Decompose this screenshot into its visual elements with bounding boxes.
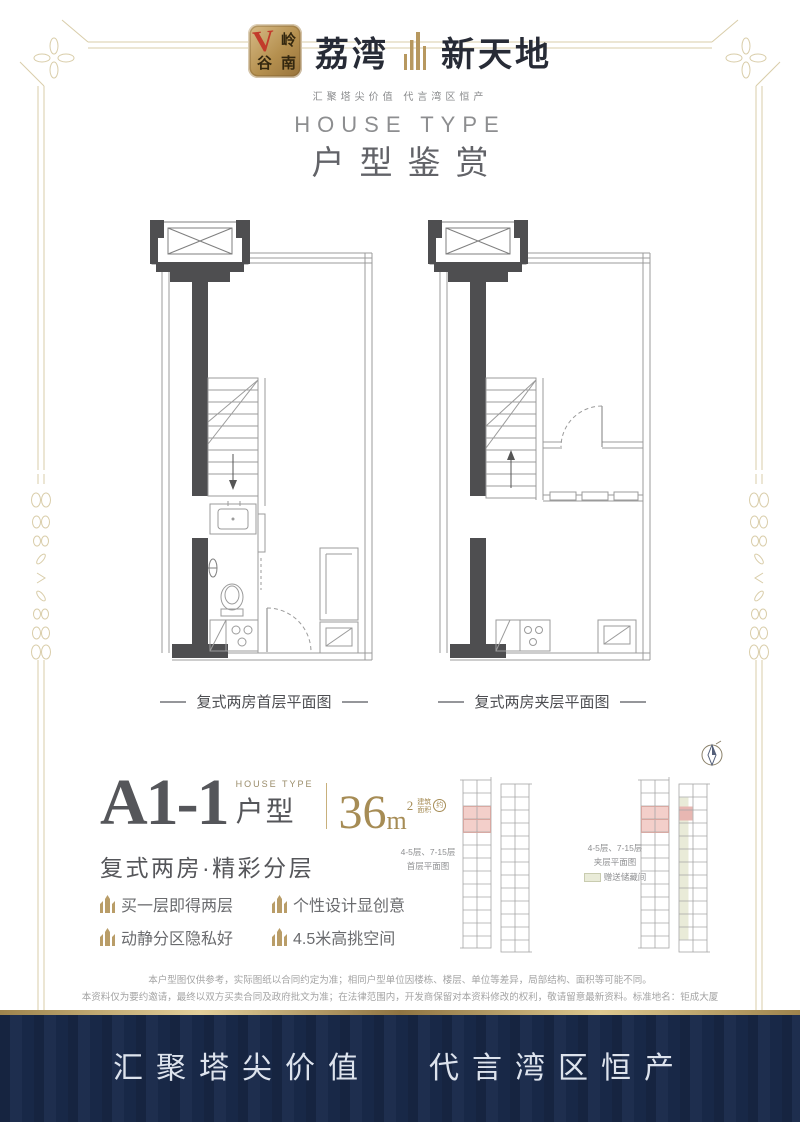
approx-badge: 约 [433,799,446,812]
feature-item: 买一层即得两层 [100,892,258,916]
area-unit: m [387,811,407,832]
unit-house-type-en: HOUSE TYPE [236,779,314,789]
dash-ornament [160,701,186,703]
dash-ornament [620,701,646,703]
disclaimer: 本户型图仅供参考，实际图纸以合同约定为准；相同户型单位因楼栋、楼层、单位等差异，… [0,973,800,1006]
mezzanine-floor-plan [424,216,660,672]
area-note: 面积 [417,807,431,816]
disclaimer-line: 本资料仅为要约邀请，最终以双方买卖合同及政府批文为准；在法律范围内，开发商保留对… [0,990,800,1007]
section-title-cn: 户型鉴赏 [0,136,800,184]
mezzanine-caption: 复式两房夹层平面图 [422,691,662,712]
compass-icon [699,740,725,768]
first-floor-plan [146,216,382,672]
keyplan-floors: 4-5层、7-15层 [393,846,463,860]
tower-icon [402,32,428,70]
disclaimer-line: 本户型图仅供参考，实际图纸以合同约定为准；相同户型单位因楼栋、楼层、单位等差异，… [0,973,800,990]
area-exponent: 2 [407,798,414,814]
keyplan-left-label: 4-5层、7-15层 首层平面图 [393,846,463,873]
building-icon [272,928,287,946]
unit-code: A1-1 [100,774,228,832]
keyplan-mezzanine [638,777,716,955]
feature-text: 个性设计显创意 [293,892,405,916]
dash-ornament [438,701,464,703]
feature-item: 个性设计显创意 [272,892,405,916]
building-icon [272,895,287,913]
poster-page: V 岭 谷 南 荔湾 新天地 汇聚塔尖价值 代言湾区恒产 HOUSE TYPE … [0,0,800,1122]
brand-name-left: 荔湾 [315,27,389,76]
feature-list: 买一层即得两层 个性设计显创意 动静分区隐私好 4.5米高挑空间 [100,892,405,949]
feature-item: 动静分区隐私好 [100,925,258,949]
brand-logo-icon: V 岭 谷 南 [248,24,302,78]
slogan-right: 代言湾区恒产 [429,1043,687,1087]
feature-text: 动静分区隐私好 [121,925,233,949]
logo-char: 谷 [257,52,272,73]
unit-area: 36 m 2 建筑 面积 约 [339,794,447,832]
caption-text: 复式两房首层平面图 [196,691,331,712]
brand-tagline: 汇聚塔尖价值 代言湾区恒产 [0,88,800,103]
divider [326,783,327,829]
brand-name-right: 新天地 [441,27,552,76]
unit-house-type-cn: 户型 [236,790,296,830]
dash-ornament [342,701,368,703]
unit-subtitle: 复式两房·精彩分层 [100,849,314,883]
feature-item: 4.5米高挑空间 [272,925,405,949]
section-title-en: HOUSE TYPE [0,112,800,138]
feature-text: 买一层即得两层 [121,892,233,916]
building-icon [100,928,115,946]
brand-header: V 岭 谷 南 荔湾 新天地 [0,24,800,78]
unit-headline: A1-1 HOUSE TYPE 户型 36 m 2 建筑 面积 约 [100,774,446,832]
footer-banner: 汇聚塔尖价值 代言湾区恒产 [0,1015,800,1122]
first-floor-caption: 复式两房首层平面图 [144,691,384,712]
keyplan-first-floor [460,777,538,955]
slogan-left: 汇聚塔尖价值 [113,1043,371,1087]
logo-char: 岭 [281,29,296,50]
keyplan-type: 首层平面图 [393,860,463,874]
logo-char: 南 [281,52,296,73]
area-value: 36 [339,794,387,832]
legend-swatch [584,873,601,882]
building-icon [100,895,115,913]
caption-text: 复式两房夹层平面图 [474,691,609,712]
feature-text: 4.5米高挑空间 [293,925,395,949]
